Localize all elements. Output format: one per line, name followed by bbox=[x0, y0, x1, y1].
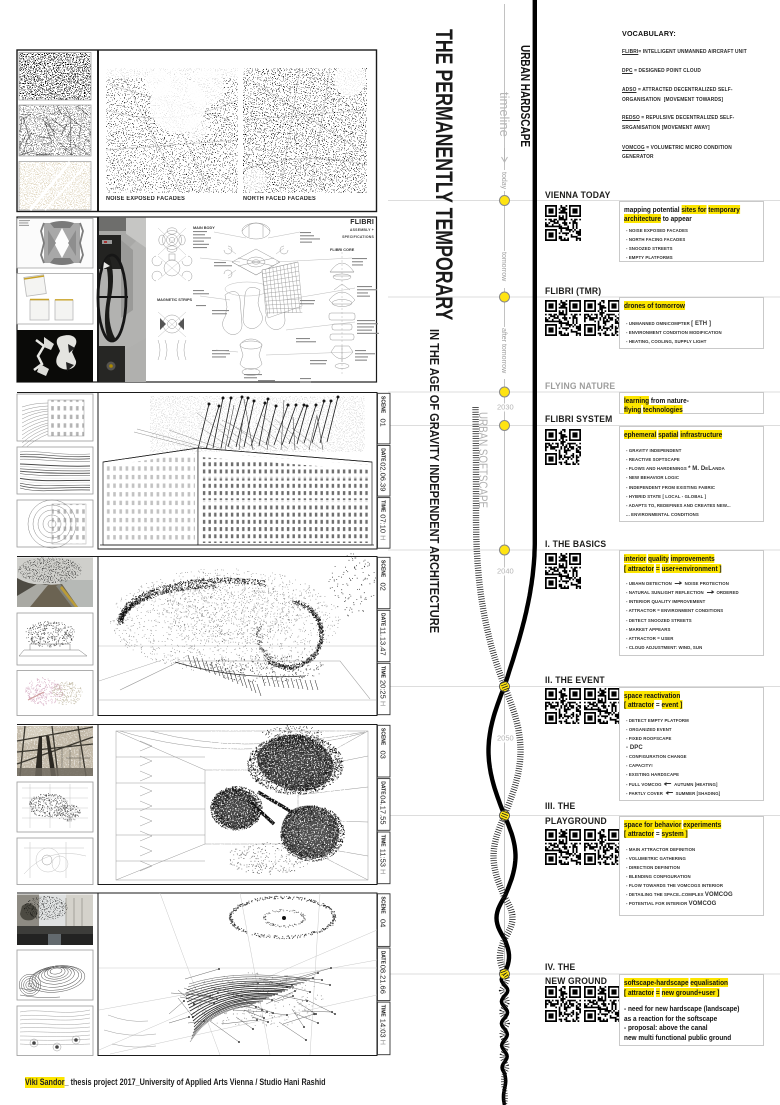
svg-text:03: 03 bbox=[379, 751, 388, 759]
svg-text:DATE: DATE bbox=[380, 951, 386, 965]
svg-text:after tomorrow: after tomorrow bbox=[500, 328, 507, 374]
svg-text:THE PERMANENTLY TEMPORARY: THE PERMANENTLY TEMPORARY bbox=[430, 29, 456, 320]
svg-text:TIME: TIME bbox=[380, 500, 386, 513]
svg-text:DATE: DATE bbox=[380, 781, 386, 795]
svg-text:DATE: DATE bbox=[380, 448, 386, 462]
svg-text:07:10 H: 07:10 H bbox=[379, 514, 388, 540]
svg-text:URBAN HARDSCAPE: URBAN HARDSCAPE bbox=[518, 45, 531, 147]
svg-text:URBAN SOFTSCAPE: URBAN SOFTSCAPE bbox=[476, 412, 489, 508]
svg-text:DATE: DATE bbox=[380, 613, 386, 627]
svg-text:01: 01 bbox=[379, 419, 388, 427]
svg-text:IN THE AGE OF GRAVITY INDEPEND: IN THE AGE OF GRAVITY INDEPENDENT ARCHIT… bbox=[427, 329, 442, 633]
svg-text:02: 02 bbox=[379, 583, 388, 591]
svg-text:2050: 2050 bbox=[497, 734, 514, 743]
svg-text:MAIN BODY: MAIN BODY bbox=[193, 226, 215, 230]
svg-text:11.13.47: 11.13.47 bbox=[379, 627, 388, 656]
svg-text:08.21.66: 08.21.66 bbox=[379, 965, 388, 994]
svg-text:TIME: TIME bbox=[380, 666, 386, 679]
svg-text:04.17.55: 04.17.55 bbox=[379, 795, 388, 824]
svg-text:FLIBRI CORE: FLIBRI CORE bbox=[330, 248, 355, 252]
svg-text:SCENE: SCENE bbox=[380, 728, 386, 746]
svg-text:SCENE: SCENE bbox=[380, 897, 386, 915]
svg-text:MAGNETIC STRIPS: MAGNETIC STRIPS bbox=[157, 298, 192, 302]
svg-text:TIME: TIME bbox=[380, 1005, 386, 1018]
svg-text:11:53 H: 11:53 H bbox=[379, 849, 388, 875]
svg-text:TIME: TIME bbox=[380, 835, 386, 848]
svg-text:SCENE: SCENE bbox=[380, 396, 386, 414]
svg-text:14:03 H: 14:03 H bbox=[379, 1019, 388, 1045]
svg-text:tomorrow: tomorrow bbox=[500, 252, 507, 282]
svg-text:04: 04 bbox=[379, 919, 388, 927]
svg-text:SCENE: SCENE bbox=[380, 560, 386, 578]
svg-text:timeline: timeline bbox=[497, 92, 512, 137]
svg-text:20:25 H: 20:25 H bbox=[379, 680, 388, 706]
svg-text:02.06.39: 02.06.39 bbox=[379, 462, 388, 491]
svg-text:2040: 2040 bbox=[497, 567, 514, 576]
svg-text:today: today bbox=[500, 172, 507, 190]
svg-text:2030: 2030 bbox=[497, 403, 514, 412]
